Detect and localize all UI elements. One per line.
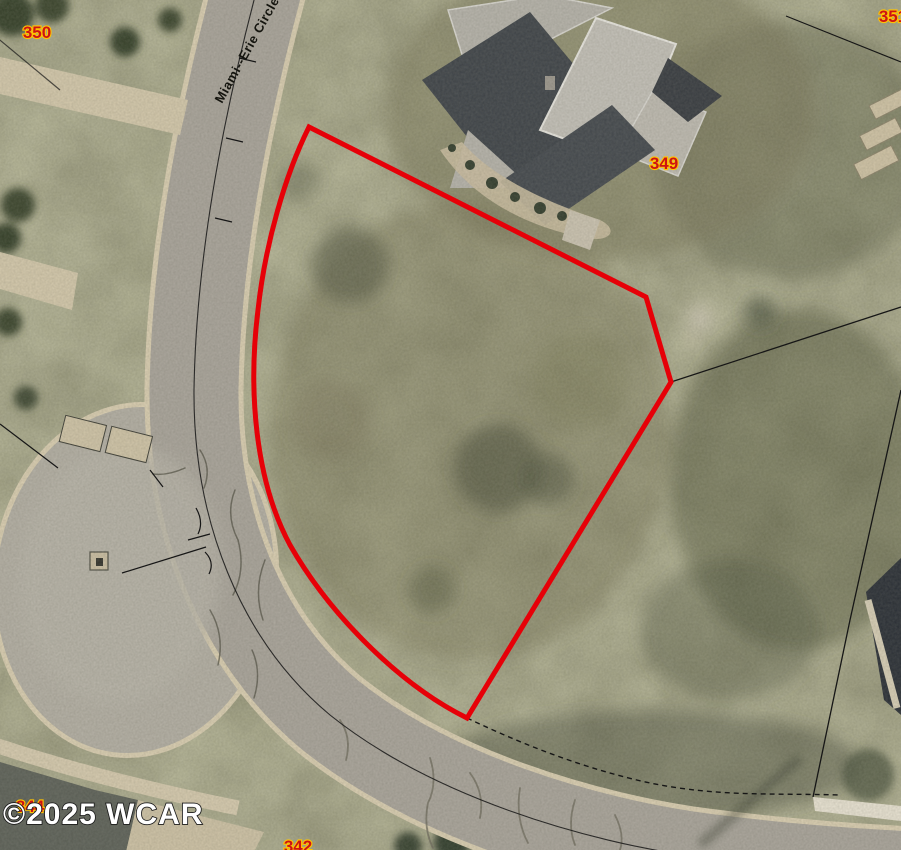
photo-grain-light xyxy=(0,0,901,850)
copyright-watermark: ©2025 WCAR xyxy=(3,798,204,831)
aerial-map-canvas: 350 351 349 344 342 Miami--Erie Circle ©… xyxy=(0,0,901,850)
parcel-label-349: 349 xyxy=(650,154,678,173)
parcel-label-350: 350 xyxy=(23,23,51,42)
parcel-label-351: 351 xyxy=(879,7,901,26)
parcel-label-342: 342 xyxy=(284,837,312,850)
aerial-map-image: 350 351 349 344 342 Miami--Erie Circle ©… xyxy=(0,0,901,850)
